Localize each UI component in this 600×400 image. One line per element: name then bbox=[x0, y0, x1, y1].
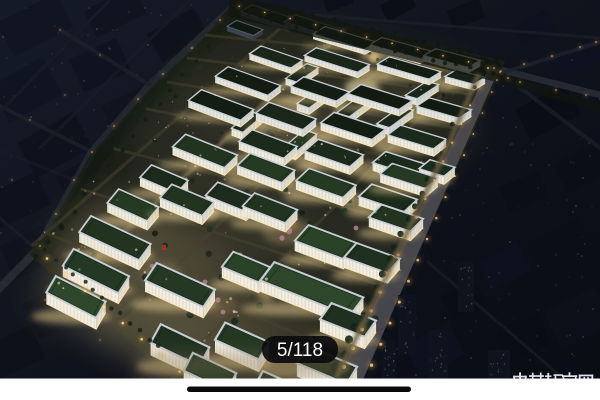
svg-text:5/118: 5/118 bbox=[277, 340, 323, 361]
